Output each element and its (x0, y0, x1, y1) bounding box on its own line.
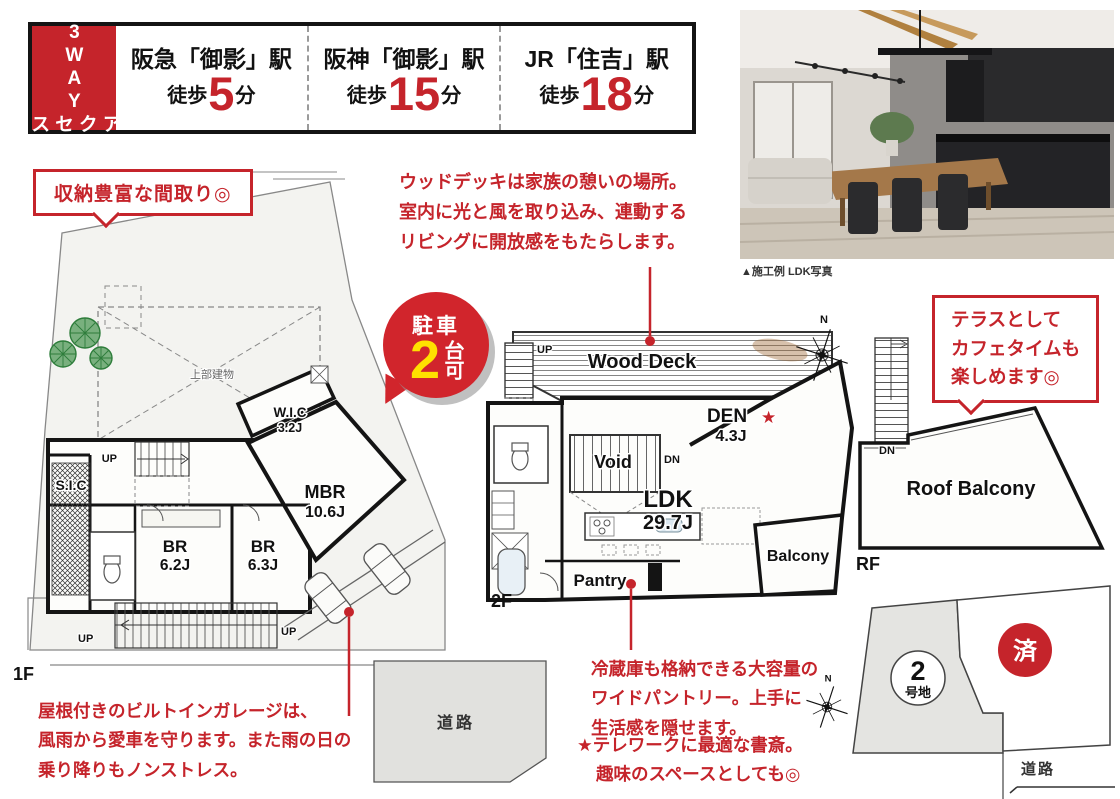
callout-terrace-line: カフェタイムも (951, 335, 1080, 364)
roof-balcony-label: Roof Balcony (907, 478, 1037, 500)
pantry-label: Pantry (574, 571, 627, 590)
den-size: 4.3J (715, 428, 746, 445)
access-tag-access: アクセス (27, 114, 122, 135)
pantry-closet (648, 563, 662, 591)
ldk-size: 29.7J (643, 512, 693, 534)
flyer-page: 3WAY アクセス 阪急「御影」駅 徒歩 5 分 阪神「御影」駅 徒歩 15 分… (0, 0, 1120, 799)
road-center: 道路 (368, 652, 554, 792)
br2-label: BR (251, 537, 276, 556)
closet-br1 (142, 510, 220, 527)
walk-label: 徒歩 (540, 79, 580, 108)
note-line: 冷蔵庫も格納できる大容量の (591, 655, 818, 684)
ldk-label: LDK (643, 486, 693, 513)
north-label: N (825, 673, 832, 684)
floor-plan-1f: 上部建物 (25, 168, 450, 693)
floor-plan-2f: N Wood Deck UP DEN ★ 4.3J Void DN LDK 29… (480, 293, 855, 613)
walk-minutes: 18 (581, 72, 633, 117)
walk-line: 徒歩 15 分 (347, 72, 461, 117)
note-garage: 屋根付きのビルトインガレージは、 風雨から愛車を守ります。また雨の日の 乗り降り… (38, 697, 351, 785)
parking-badge-number: 2 (410, 336, 440, 385)
note-line: 乗り降りもノンストレス。 (38, 756, 351, 785)
note-line: 風雨から愛車を守ります。また雨の日の (38, 726, 351, 755)
note-line: ★テレワークに最適な書斎。 (577, 731, 803, 760)
callout-storage: 収納豊富な間取り◎ (33, 169, 253, 216)
walk-minutes: 15 (388, 72, 440, 117)
balcony-label: Balcony (767, 548, 829, 565)
sic-label: S.I.C (55, 477, 86, 493)
callout-terrace-line: テラスとして (951, 306, 1080, 335)
walk-label: 徒歩 (167, 79, 207, 108)
lot-suffix: 号地 (905, 685, 931, 700)
up-label: UP (281, 626, 296, 638)
note-line: 趣味のスペースとしても◎ (577, 760, 803, 789)
access-banner: 3WAY アクセス 阪急「御影」駅 徒歩 5 分 阪神「御影」駅 徒歩 15 分… (28, 22, 696, 134)
note-pantry: 冷蔵庫も格納できる大容量の ワイドパントリー。上手に 生活感を隠せます。 (591, 655, 818, 743)
bathtub-icon (498, 549, 525, 595)
ldk-photo-art (740, 10, 1114, 259)
walk-unit: 分 (634, 79, 654, 108)
lot-number: 2 (910, 656, 925, 686)
wic-size: 3.2J (278, 421, 302, 435)
note-line: 屋根付きのビルトインガレージは、 (38, 697, 351, 726)
walk-label: 徒歩 (347, 79, 387, 108)
note-den: ★テレワークに最適な書斎。 趣味のスペースとしても◎ (577, 731, 803, 790)
void-label: Void (594, 452, 632, 472)
note-line: ワイドパントリー。上手に (591, 684, 818, 713)
up-label: UP (102, 453, 117, 465)
parking-badge: 駐車 2 台可 (383, 292, 489, 398)
station-hankyu: 阪急「御影」駅 徒歩 5 分 (116, 26, 307, 130)
site-plan: 2 号地 済 道路 N (795, 583, 1120, 799)
den-label: DEN (707, 406, 747, 427)
floor-label-rf: RF (856, 554, 880, 575)
sold-label: 済 (1013, 638, 1038, 665)
br1-label: BR (163, 537, 188, 556)
br2-size: 6.3J (248, 557, 278, 574)
dn-label: DN (664, 454, 680, 466)
note-line: リビングに開放感をもたらします。 (399, 227, 687, 257)
den-star: ★ (761, 408, 776, 427)
upper-building-label: 上部建物 (190, 367, 234, 381)
road-center-label: 道路 (437, 713, 475, 732)
dn-label: DN (879, 445, 895, 457)
note-line: 室内に光と風を取り込み、連動する (399, 197, 687, 227)
station-hanshin: 阪神「御影」駅 徒歩 15 分 (307, 26, 500, 130)
br1-size: 6.2J (160, 557, 190, 574)
walk-minutes: 5 (208, 72, 234, 117)
walk-line: 徒歩 5 分 (167, 72, 255, 117)
wic-label: W.I.C (274, 405, 307, 420)
walk-unit: 分 (235, 79, 255, 108)
callout-terrace: テラスとして カフェタイムも 楽しめます◎ (932, 295, 1099, 403)
mbr-label: MBR (305, 482, 346, 502)
up-label: UP (78, 633, 93, 645)
walk-line: 徒歩 18 分 (540, 72, 654, 117)
up-label: UP (537, 344, 552, 356)
callout-storage-text: 収納豊富な間取り◎ (54, 184, 232, 205)
note-line: ウッドデッキは家族の憩いの場所。 (399, 167, 687, 197)
ldk-photo (740, 10, 1114, 259)
parking-badge-side: 台可 (442, 340, 462, 380)
north-label: N (820, 314, 828, 326)
rf-stairs (875, 338, 908, 442)
station-jr: JR「住吉」駅 徒歩 18 分 (499, 26, 692, 130)
wood-deck-label: Wood Deck (588, 351, 697, 373)
floor-label-2f: 2F (491, 591, 512, 612)
access-tag: 3WAY アクセス (32, 26, 116, 130)
photo-caption: ▲施工例 LDK写真 (741, 263, 833, 279)
site-road-label: 道路 (1021, 760, 1055, 778)
note-wood-deck: ウッドデッキは家族の憩いの場所。 室内に光と風を取り込み、連動する リビングに開… (399, 167, 687, 258)
floor-label-1f: 1F (13, 664, 34, 685)
walk-unit: 分 (441, 79, 461, 108)
mbr-size: 10.6J (305, 504, 345, 521)
access-tag-3way: 3WAY (62, 22, 86, 114)
